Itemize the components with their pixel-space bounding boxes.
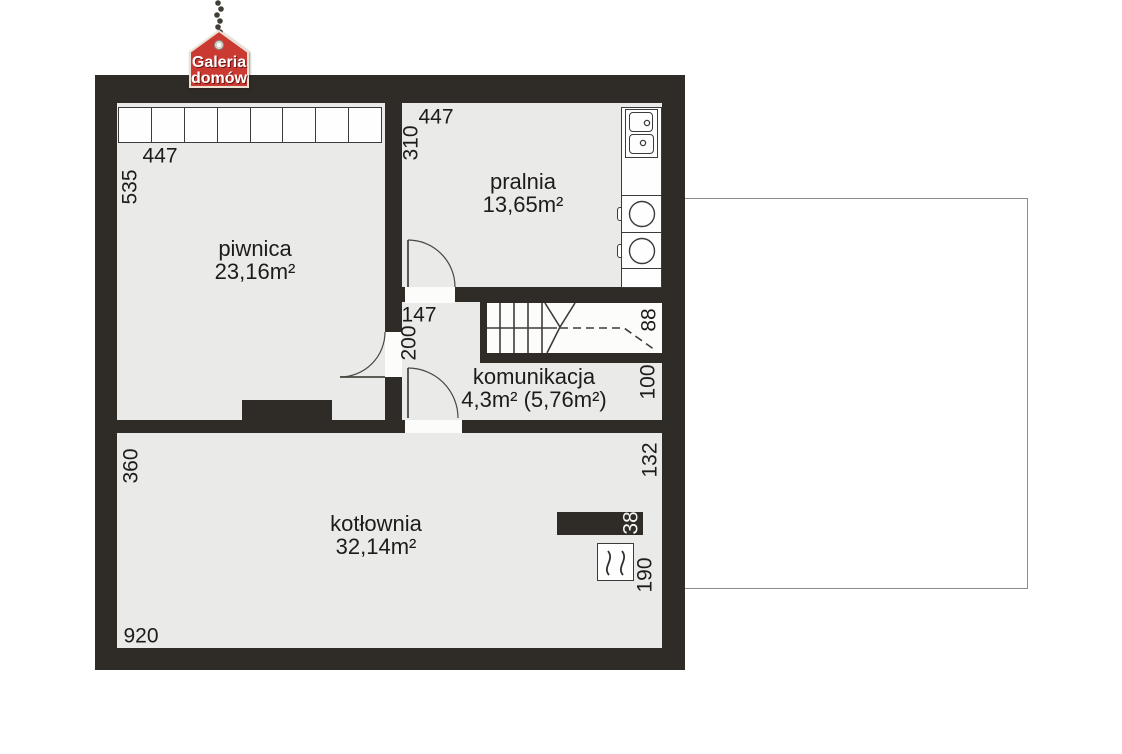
shelf-cell (152, 108, 185, 142)
washer-hinge (617, 207, 622, 221)
dim-komunikacja-height: 100 (638, 364, 659, 399)
logo-text-line1: Galeria (192, 55, 246, 71)
room-label-pralnia: pralnia (490, 171, 556, 193)
floor-plan-canvas: Galeria domów piwnica 23,16m² pralnia 13… (0, 0, 1122, 754)
shelf-cell (251, 108, 284, 142)
wall-notch (242, 400, 332, 420)
shelf-cell (218, 108, 251, 142)
dim-hall-width: 147 (401, 305, 436, 326)
shelf-cell (119, 108, 152, 142)
dim-piwnica-height: 535 (120, 169, 141, 204)
logo-text-line2: domów (191, 71, 247, 87)
room-label-piwnica: piwnica (218, 238, 291, 260)
dim-pralnia-height: 310 (401, 125, 422, 160)
washer-hinge (617, 244, 622, 258)
sink-basin (629, 112, 653, 132)
boiler-unit (597, 543, 634, 581)
dim-kotlownia-right: 132 (640, 442, 661, 477)
dim-stair-width: 88 (639, 308, 660, 331)
dim-hall-height: 200 (399, 325, 420, 360)
room-label-kotlownia: kotłownia (330, 513, 422, 535)
room-area-kotlownia: 32,14m² (336, 536, 417, 558)
stairwell (487, 303, 662, 353)
room-area-pralnia: 13,65m² (483, 194, 564, 216)
washer (621, 195, 662, 233)
dim-kotlownia-width: 920 (123, 626, 158, 647)
door-opening-pralnia (405, 287, 455, 303)
room-area-piwnica: 23,16m² (215, 261, 296, 283)
room-area-komunikacja: 4,3m² (5,76m²) (461, 389, 606, 411)
shelf-cell (349, 108, 381, 142)
annex-outline (680, 198, 1028, 589)
room-label-komunikacja: komunikacja (473, 366, 595, 388)
washer (621, 232, 662, 269)
shelf-cell (185, 108, 218, 142)
dim-chimney-width: 38 (621, 511, 642, 534)
door-opening-kotlownia (405, 420, 462, 433)
dim-pralnia-width: 447 (418, 107, 453, 128)
shelf-cell (283, 108, 316, 142)
logo-chain-icon (214, 0, 224, 35)
dim-boiler-distance: 190 (635, 557, 656, 592)
shelf-cell (316, 108, 349, 142)
dim-kotlownia-height: 360 (121, 448, 142, 483)
shelf-strip (118, 107, 382, 143)
dim-piwnica-width: 447 (142, 146, 177, 167)
sink-basin (629, 134, 654, 154)
